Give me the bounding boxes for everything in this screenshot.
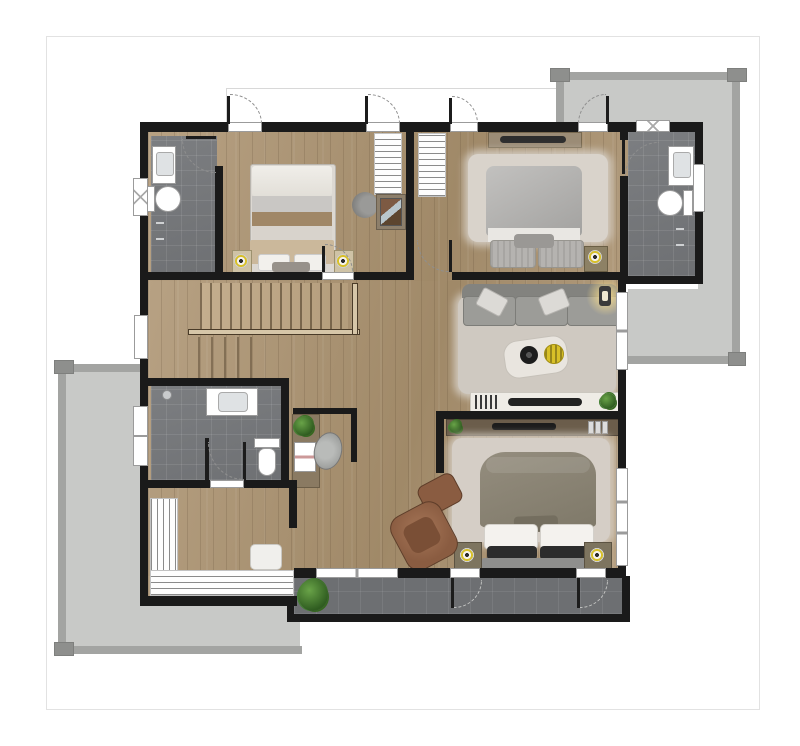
bottles: [595, 421, 601, 434]
tv: [508, 398, 582, 406]
towel-bar: [156, 222, 164, 224]
pillow: [514, 234, 554, 248]
stair-railing: [352, 283, 358, 335]
wall: [618, 280, 626, 292]
wall: [351, 408, 357, 462]
wall: [148, 272, 322, 280]
wardrobe: [374, 133, 402, 195]
window: [693, 164, 705, 212]
wall: [215, 166, 223, 276]
table-lamp: [234, 254, 248, 268]
door-leaf: [622, 140, 625, 174]
wall: [148, 378, 289, 386]
wall: [406, 130, 414, 280]
door-threshold: [210, 480, 244, 488]
balcony-wall: [556, 72, 742, 80]
wall: [398, 568, 450, 578]
towel-bar: [676, 228, 684, 230]
balcony-wall: [732, 72, 740, 364]
wall: [140, 596, 297, 606]
toilet-bowl: [657, 190, 683, 216]
wall: [289, 480, 297, 528]
wall: [618, 566, 626, 578]
tv: [500, 136, 566, 143]
table-lamp: [459, 547, 475, 563]
balcony-wall: [628, 356, 740, 364]
door-threshold: [576, 568, 606, 578]
pillow: [272, 262, 310, 272]
balcony-left: [64, 604, 300, 652]
staircase: [200, 283, 348, 329]
wall: [287, 614, 630, 622]
chair: [352, 192, 378, 218]
plant: [600, 393, 616, 409]
wall: [281, 378, 289, 480]
shower-head: [162, 390, 172, 400]
bed-duvet: [252, 166, 332, 196]
wall: [620, 276, 703, 284]
wall: [452, 272, 628, 280]
sink-basin: [156, 152, 174, 176]
wall-cap: [54, 360, 74, 374]
wall-cap: [728, 352, 746, 366]
toilet-tank: [254, 438, 280, 448]
bed-blanket: [252, 196, 332, 212]
window: [616, 468, 628, 566]
wall-cap: [54, 642, 74, 656]
door-threshold: [450, 568, 480, 578]
wall: [436, 411, 626, 419]
plant: [449, 420, 462, 433]
balcony-wall: [58, 364, 66, 654]
wall-cap: [550, 68, 570, 82]
bottles: [602, 421, 608, 434]
wardrobe-rails: [150, 570, 294, 596]
wall: [140, 122, 703, 132]
floor-plan-canvas: [0, 0, 800, 746]
bowl: [520, 346, 538, 364]
wall-cap: [727, 68, 747, 82]
wardrobe: [418, 133, 446, 197]
table-lamp: [589, 547, 605, 563]
wall: [294, 568, 316, 578]
window: [616, 292, 628, 370]
towel-bar: [676, 244, 684, 246]
window: [133, 406, 148, 466]
bed-duvet: [486, 166, 582, 236]
wall-sconce: [602, 291, 608, 301]
wall: [618, 370, 626, 468]
desk-picture: [380, 198, 402, 226]
wall: [622, 576, 630, 622]
wall: [480, 568, 576, 578]
wall: [148, 480, 210, 488]
basket: [544, 344, 564, 364]
balcony-top-right: [628, 289, 740, 364]
window: [636, 120, 670, 132]
wall: [436, 411, 444, 473]
wall: [354, 272, 414, 280]
plant: [294, 416, 314, 436]
toilet-bowl: [155, 186, 181, 212]
window: [133, 178, 148, 216]
window: [316, 568, 398, 578]
tv: [492, 423, 556, 430]
bed-fold: [486, 457, 590, 473]
staircase-lower-steps: [198, 337, 254, 378]
sink-basin: [673, 152, 691, 178]
toilet-tank: [683, 190, 693, 216]
bed-blanket: [252, 212, 332, 226]
bottles: [588, 421, 594, 434]
balcony-wall: [58, 646, 302, 654]
door-leaf: [606, 96, 609, 124]
wall: [620, 176, 628, 284]
table-lamp: [588, 250, 602, 264]
wall: [620, 130, 628, 140]
plant: [298, 579, 328, 611]
wall: [293, 408, 357, 414]
towel-bar: [156, 238, 164, 240]
stool: [250, 544, 282, 570]
stair-railing: [188, 329, 360, 335]
door-leaf: [449, 240, 452, 272]
wall: [244, 480, 289, 488]
door-threshold: [322, 272, 354, 280]
books: [475, 395, 497, 409]
sink-basin: [218, 392, 248, 412]
window: [134, 315, 148, 359]
toilet-bowl: [258, 448, 276, 476]
